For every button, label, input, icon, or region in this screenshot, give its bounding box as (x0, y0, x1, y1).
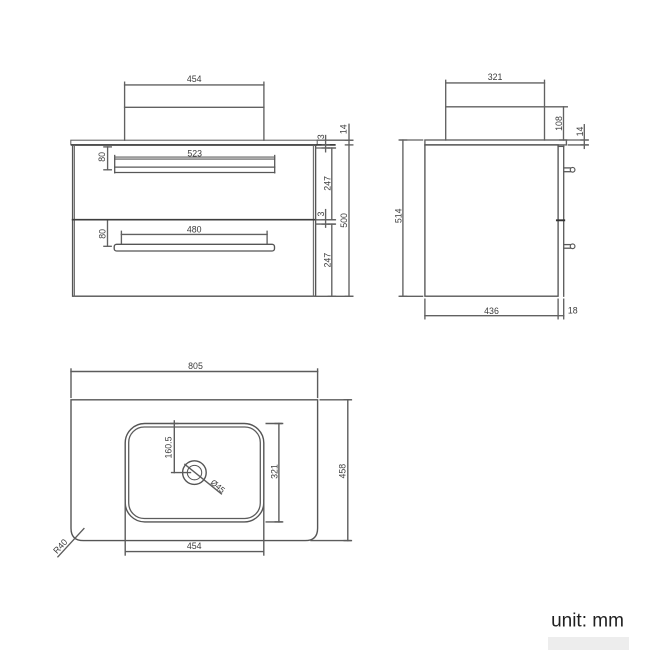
svg-text:454: 454 (187, 74, 202, 84)
svg-text:80: 80 (97, 152, 107, 162)
svg-text:247: 247 (322, 176, 332, 191)
svg-text:321: 321 (270, 464, 280, 479)
svg-text:80: 80 (98, 229, 108, 239)
svg-text:14: 14 (575, 127, 585, 137)
svg-text:18: 18 (568, 306, 578, 316)
svg-text:108: 108 (554, 116, 564, 131)
svg-text:454: 454 (187, 541, 202, 551)
svg-text:3: 3 (316, 211, 326, 216)
svg-text:458: 458 (337, 464, 347, 479)
svg-text:805: 805 (188, 361, 203, 371)
svg-text:3: 3 (316, 134, 326, 139)
svg-text:321: 321 (488, 72, 503, 82)
svg-text:480: 480 (187, 225, 202, 235)
svg-text:436: 436 (484, 306, 499, 316)
svg-text:523: 523 (187, 149, 202, 159)
svg-text:unit: mm: unit: mm (551, 611, 624, 632)
svg-text:514: 514 (394, 208, 404, 223)
svg-text:14: 14 (339, 124, 349, 134)
svg-text:500: 500 (339, 213, 349, 228)
svg-text:247: 247 (322, 253, 332, 268)
svg-text:160.5: 160.5 (163, 436, 173, 458)
